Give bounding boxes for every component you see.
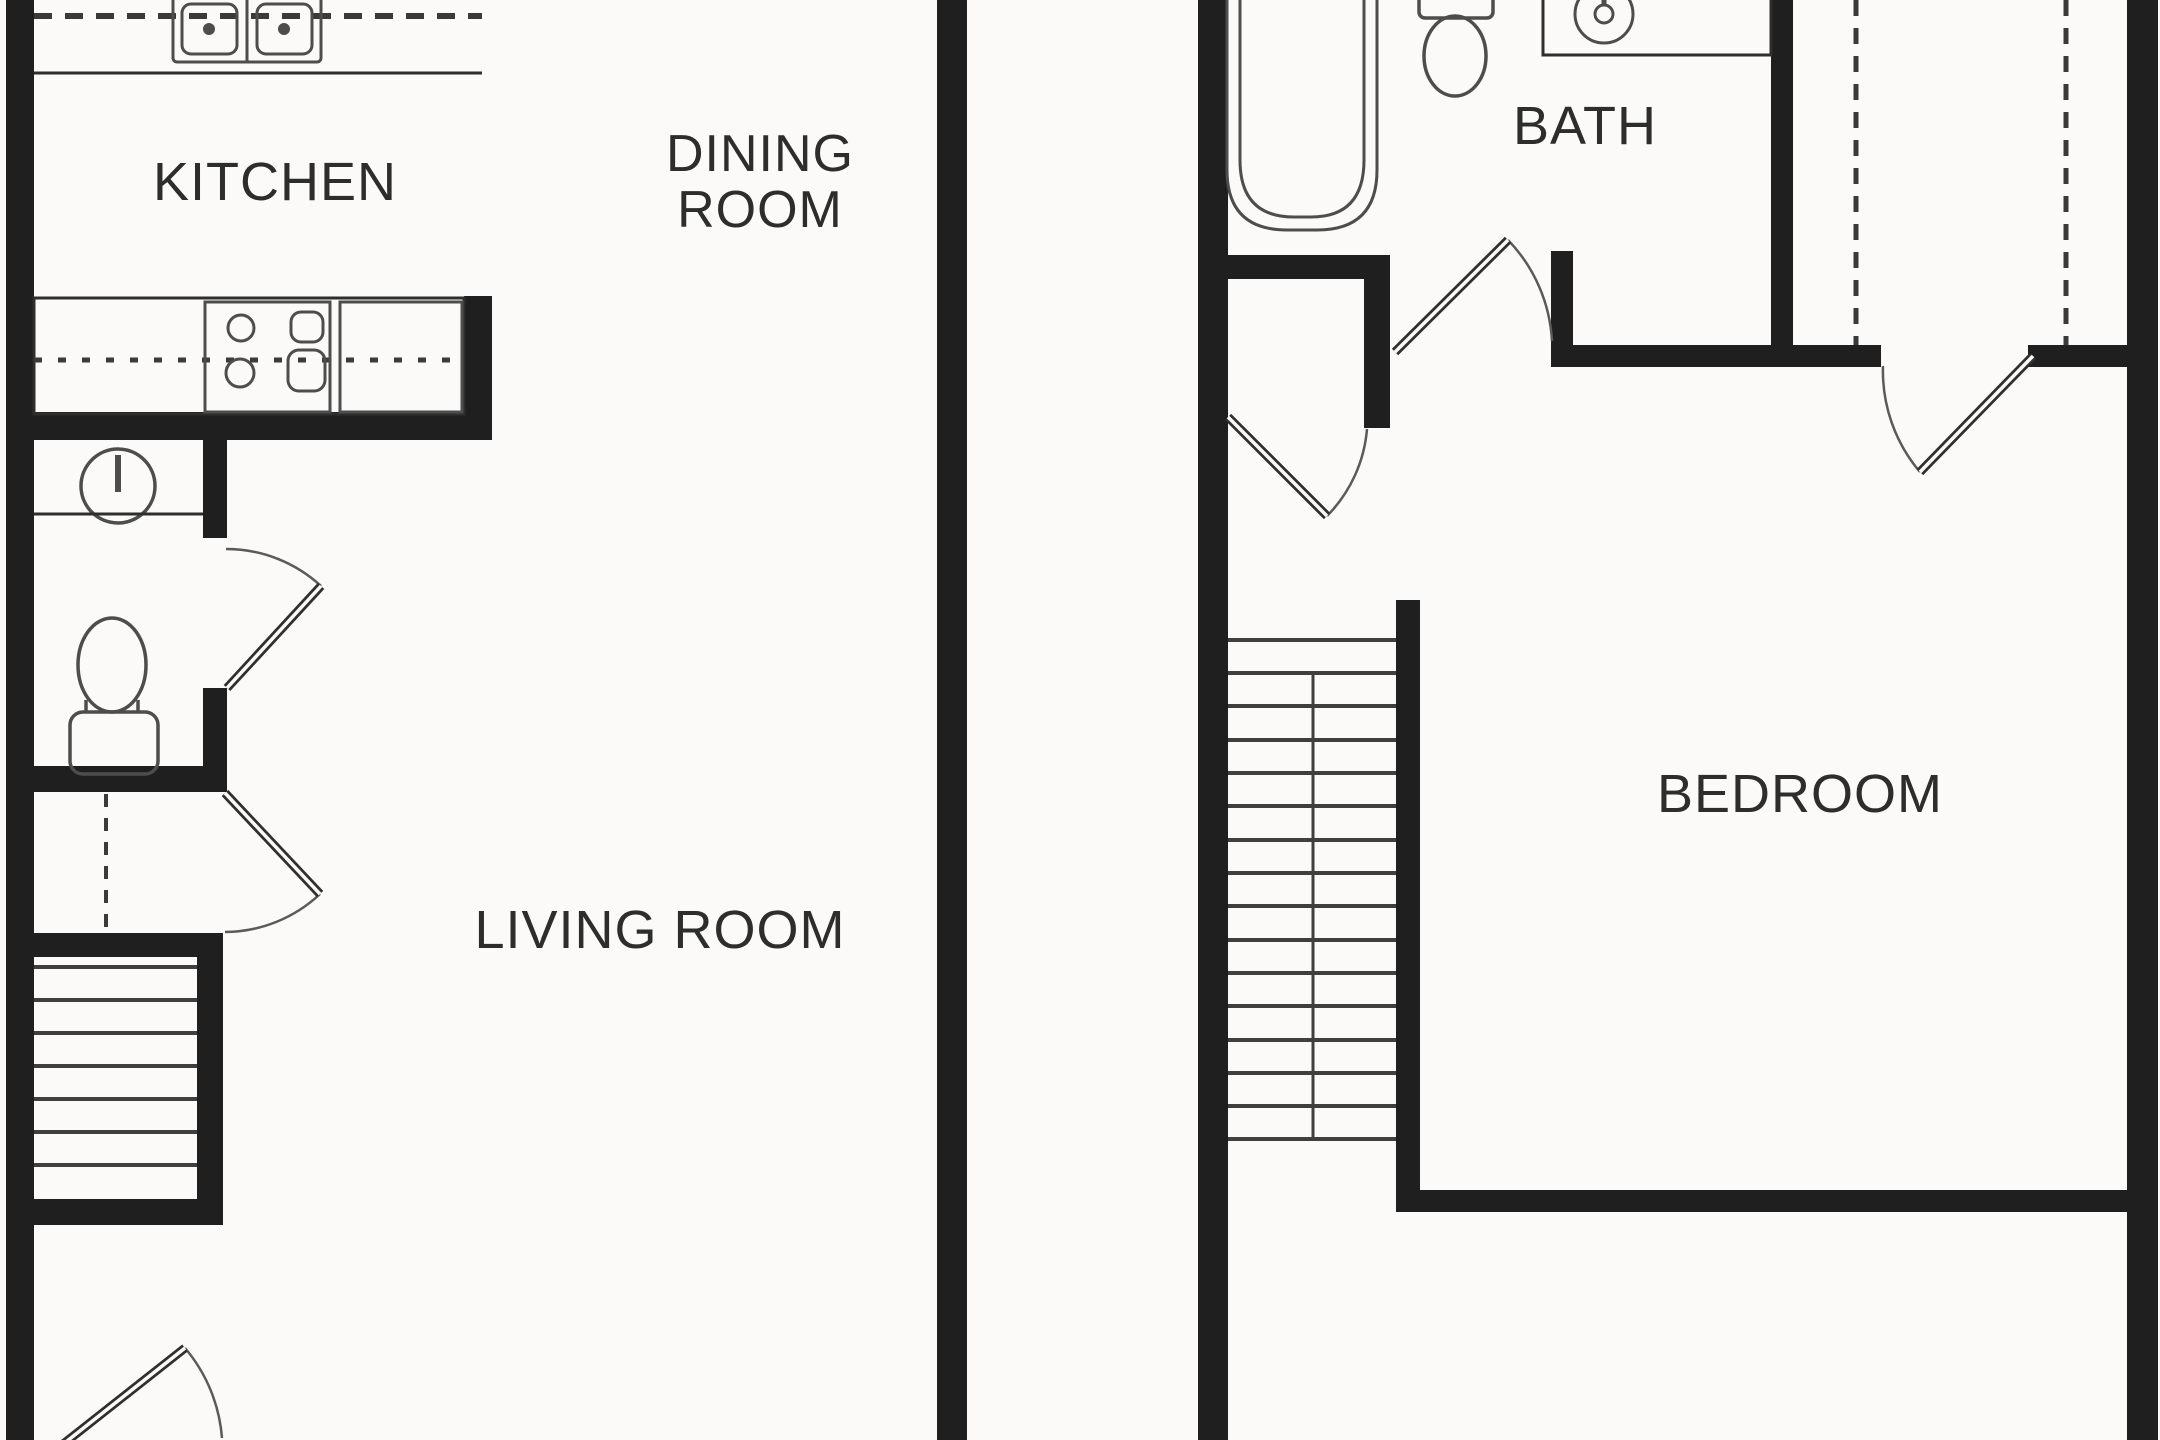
wall-powder-room-stub-upper bbox=[203, 428, 227, 538]
wall-stairs-right bbox=[1396, 600, 1420, 1212]
room-label-kitchen: KITCHEN bbox=[153, 153, 397, 211]
bath-door bbox=[1395, 240, 1552, 352]
kitchen-upper-counter bbox=[34, 0, 482, 73]
door-arc bbox=[1327, 429, 1367, 516]
door-arc bbox=[226, 549, 321, 586]
room-label-dining-room: DINING ROOM bbox=[550, 126, 970, 238]
wall-left-outer bbox=[1198, 0, 1228, 1440]
dining-room-line-1: DINING bbox=[550, 126, 970, 182]
range-stove-icon bbox=[205, 302, 330, 412]
wall-linen-closet-right bbox=[1364, 255, 1390, 428]
wall-bedroom-bottom bbox=[1396, 1190, 2147, 1212]
wall-right-outer bbox=[2127, 0, 2158, 1440]
toilet-icon bbox=[70, 618, 158, 774]
wall-powder-room-bottom bbox=[34, 766, 227, 792]
wall-bath-bottom-right bbox=[2028, 345, 2127, 367]
upper-level-plan bbox=[1198, 0, 2158, 1440]
wall-left-outer bbox=[6, 0, 34, 1440]
counter-outline bbox=[34, 298, 464, 414]
bedroom-door bbox=[1883, 356, 2033, 472]
double-sink-icon bbox=[173, 0, 321, 62]
entry-door bbox=[62, 1348, 222, 1440]
door-arc bbox=[225, 894, 320, 932]
bedroom-closet-dashed-lines bbox=[1856, 0, 2066, 345]
room-label-bedroom: BEDROOM bbox=[1657, 765, 1943, 823]
wall-stairs-bottom bbox=[30, 1199, 223, 1225]
wall-counter-end-stub bbox=[464, 296, 492, 440]
bathtub-icon bbox=[1227, 0, 1377, 230]
stairs-upper-icon bbox=[1228, 640, 1396, 1139]
dishwasher-icon bbox=[340, 302, 462, 412]
door-arc bbox=[1883, 366, 1920, 472]
room-label-living-room: LIVING ROOM bbox=[474, 901, 845, 959]
wall-stairs-right bbox=[197, 933, 223, 1221]
door-arc bbox=[1508, 240, 1552, 341]
wall-bath-bottom-left bbox=[1551, 345, 1881, 367]
bath-sink-icon bbox=[1543, 0, 1771, 55]
wall-closet-left bbox=[1771, 0, 1793, 347]
wall-kitchen-lower bbox=[34, 412, 492, 440]
room-label-bath: BATH bbox=[1513, 97, 1657, 155]
wall-stairs-top bbox=[34, 933, 223, 957]
kitchen-lower-counter bbox=[34, 298, 464, 414]
stair-landing-door bbox=[1228, 417, 1367, 516]
toilet-icon bbox=[1419, 0, 1493, 96]
powder-room bbox=[34, 449, 203, 774]
upper-level-walls bbox=[1198, 0, 2158, 1440]
powder-room-door bbox=[226, 549, 321, 688]
dining-room-line-2: ROOM bbox=[550, 182, 970, 238]
door-arc bbox=[185, 1348, 222, 1438]
floor-plan-drawing bbox=[0, 0, 2160, 1440]
hall-living-door bbox=[225, 793, 320, 932]
floor-plan-page: KITCHEN DINING ROOM BATH LIVING ROOM BED… bbox=[0, 0, 2160, 1440]
stairs-lower-icon bbox=[34, 967, 197, 1165]
